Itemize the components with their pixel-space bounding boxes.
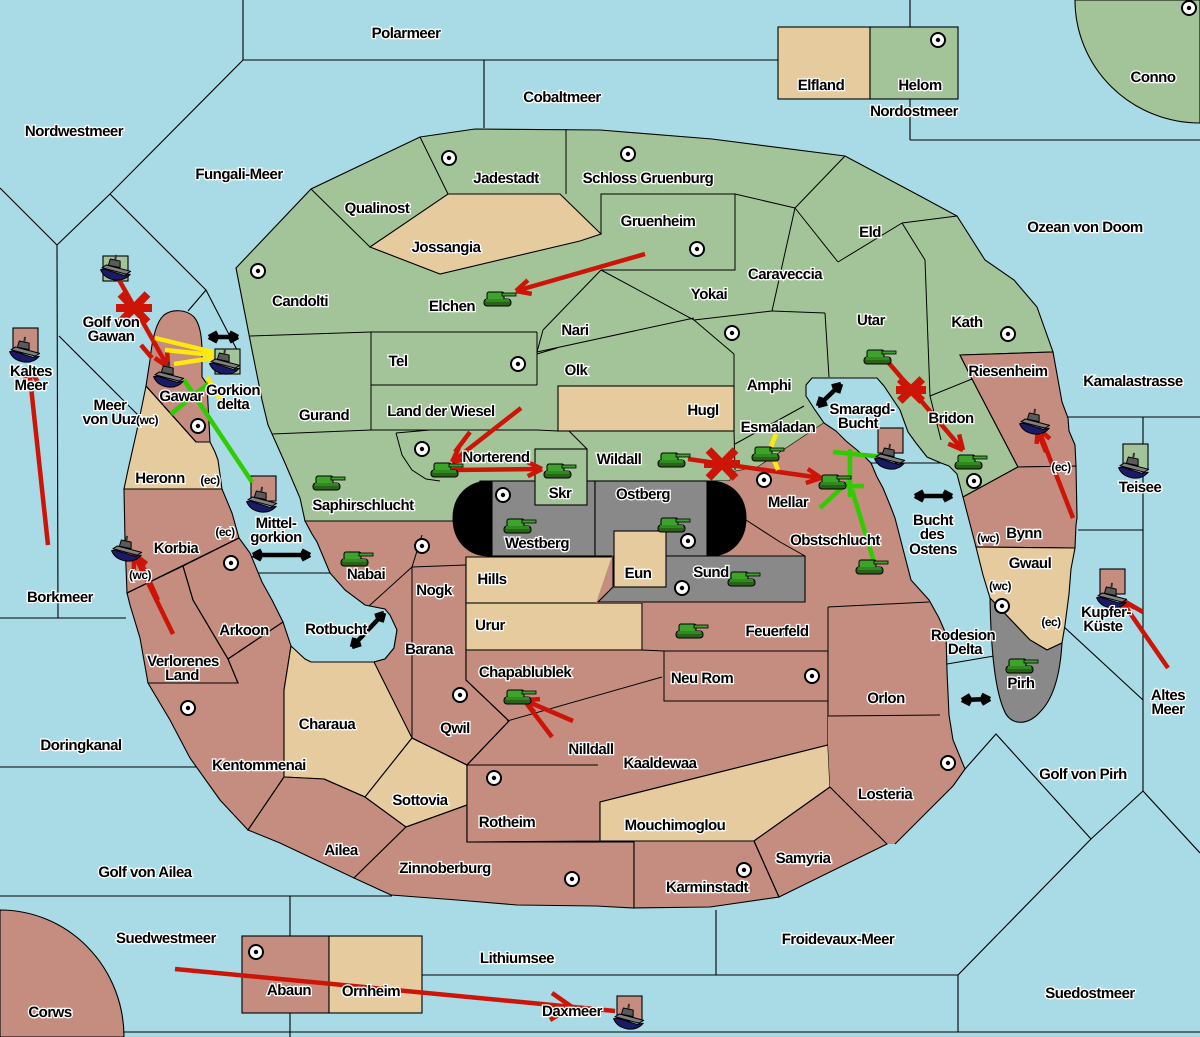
svg-text:gorkion: gorkion: [250, 529, 302, 546]
svg-text:Helom: Helom: [898, 77, 942, 94]
svg-text:Urur: Urur: [475, 617, 505, 634]
svg-text:Tel: Tel: [388, 353, 407, 370]
svg-text:Froidevaux-Meer: Froidevaux-Meer: [782, 931, 895, 948]
svg-text:Orlon: Orlon: [867, 690, 905, 707]
svg-text:Fungali-Meer: Fungali-Meer: [195, 166, 283, 183]
svg-text:Charaua: Charaua: [299, 716, 357, 733]
svg-text:Esmaladan: Esmaladan: [741, 419, 816, 436]
svg-text:Jadestadt: Jadestadt: [473, 170, 539, 187]
svg-text:Amphi: Amphi: [747, 377, 791, 394]
svg-text:Chapablublek: Chapablublek: [479, 664, 573, 681]
svg-text:Meer: Meer: [1151, 701, 1185, 718]
svg-text:Suedwestmeer: Suedwestmeer: [116, 930, 217, 947]
svg-text:Wildall: Wildall: [597, 451, 642, 468]
svg-text:Golf von Pirh: Golf von Pirh: [1039, 766, 1127, 783]
svg-text:Olk: Olk: [565, 362, 589, 379]
svg-text:Doringkanal: Doringkanal: [40, 737, 122, 754]
svg-text:Nordostmeer: Nordostmeer: [870, 103, 959, 120]
svg-text:Pirh: Pirh: [1007, 675, 1035, 692]
svg-text:Samyria: Samyria: [776, 850, 832, 867]
svg-text:Gawan: Gawan: [88, 328, 135, 345]
svg-text:Kamalastrasse: Kamalastrasse: [1083, 373, 1183, 390]
svg-text:Saphirschlucht: Saphirschlucht: [312, 497, 414, 514]
svg-text:Borkmeer: Borkmeer: [27, 589, 94, 606]
svg-text:(ec): (ec): [215, 525, 235, 539]
svg-text:Gruenheim: Gruenheim: [621, 213, 696, 230]
svg-text:Neu Rom: Neu Rom: [671, 670, 734, 687]
svg-text:Karminstadt: Karminstadt: [666, 879, 749, 896]
svg-text:Land der Wiesel: Land der Wiesel: [387, 403, 495, 420]
svg-text:(wc): (wc): [989, 579, 1012, 593]
svg-text:Qwil: Qwil: [440, 720, 470, 737]
svg-text:Ozean von Doom: Ozean von Doom: [1027, 219, 1143, 236]
svg-text:Lithiumsee: Lithiumsee: [480, 950, 554, 967]
svg-text:Nordwestmeer: Nordwestmeer: [25, 123, 124, 140]
svg-text:Candolti: Candolti: [272, 293, 328, 310]
svg-text:Zinnoberburg: Zinnoberburg: [399, 860, 491, 877]
svg-text:Küste: Küste: [1083, 618, 1122, 635]
svg-text:Abaun: Abaun: [267, 982, 312, 999]
svg-text:Ostberg: Ostberg: [616, 486, 670, 503]
svg-text:(ec): (ec): [1041, 615, 1061, 629]
svg-text:(wc): (wc): [129, 568, 152, 582]
svg-text:Utar: Utar: [857, 312, 886, 329]
svg-text:Obstschlucht: Obstschlucht: [790, 532, 880, 549]
svg-text:Kentommenai: Kentommenai: [212, 757, 306, 774]
svg-text:(wc): (wc): [136, 413, 159, 427]
svg-text:Ornheim: Ornheim: [342, 983, 400, 1000]
svg-text:Rotbucht: Rotbucht: [305, 621, 367, 638]
svg-text:Yokai: Yokai: [691, 286, 728, 303]
svg-text:Gawar: Gawar: [159, 388, 203, 405]
svg-text:Mouchimoglou: Mouchimoglou: [625, 817, 726, 834]
svg-text:Corws: Corws: [28, 1004, 72, 1021]
svg-text:Kath: Kath: [951, 314, 983, 331]
svg-text:Daxmeer: Daxmeer: [542, 1003, 603, 1020]
svg-text:Polarmeer: Polarmeer: [372, 25, 442, 42]
svg-text:Eld: Eld: [859, 224, 881, 241]
svg-text:Ostens: Ostens: [909, 541, 957, 558]
svg-text:Korbia: Korbia: [154, 540, 200, 557]
svg-text:Riesenheim: Riesenheim: [968, 363, 1047, 380]
svg-text:Arkoon: Arkoon: [219, 622, 269, 639]
svg-text:Elfland: Elfland: [798, 77, 845, 94]
svg-text:Norterend: Norterend: [462, 449, 530, 466]
svg-text:(ec): (ec): [200, 473, 220, 487]
svg-text:Sottovia: Sottovia: [392, 792, 448, 809]
svg-text:Bridon: Bridon: [928, 410, 974, 427]
svg-text:Land: Land: [165, 667, 199, 684]
svg-text:Golf von Ailea: Golf von Ailea: [98, 864, 192, 881]
svg-text:Kaaldewaa: Kaaldewaa: [623, 755, 697, 772]
svg-text:Nogk: Nogk: [416, 582, 453, 599]
svg-text:Nari: Nari: [561, 322, 589, 339]
svg-text:von Uuz: von Uuz: [83, 411, 138, 428]
svg-text:Bynn: Bynn: [1006, 525, 1042, 542]
svg-text:Losteria: Losteria: [858, 786, 914, 803]
svg-text:Delta: Delta: [948, 641, 983, 658]
svg-text:Skr: Skr: [549, 485, 572, 502]
svg-text:Teisee: Teisee: [1119, 479, 1162, 496]
svg-text:Gwaul: Gwaul: [1009, 555, 1052, 572]
svg-text:Hills: Hills: [477, 571, 506, 588]
svg-text:Qualinost: Qualinost: [345, 200, 410, 217]
svg-text:Jossangia: Jossangia: [412, 239, 482, 256]
svg-text:Heronn: Heronn: [135, 470, 185, 487]
svg-text:Nabai: Nabai: [347, 566, 386, 583]
svg-text:Elchen: Elchen: [429, 298, 476, 315]
svg-text:Conno: Conno: [1131, 69, 1176, 86]
svg-text:Westberg: Westberg: [505, 535, 569, 552]
svg-text:Meer: Meer: [14, 377, 48, 394]
svg-text:Rotheim: Rotheim: [479, 814, 536, 831]
svg-text:Mellar: Mellar: [768, 494, 809, 511]
svg-text:Bucht: Bucht: [838, 415, 879, 432]
svg-text:Gurand: Gurand: [299, 407, 350, 424]
svg-text:Nilldall: Nilldall: [568, 741, 614, 758]
svg-text:Schloss Gruenburg: Schloss Gruenburg: [583, 170, 714, 187]
svg-text:delta: delta: [217, 396, 251, 413]
svg-text:Sund: Sund: [693, 564, 729, 581]
svg-text:(ec): (ec): [1051, 460, 1071, 474]
svg-text:Ailea: Ailea: [324, 842, 359, 859]
svg-text:(wc): (wc): [977, 531, 1000, 545]
svg-text:Caraveccia: Caraveccia: [748, 266, 823, 283]
svg-text:Cobaltmeer: Cobaltmeer: [523, 89, 601, 106]
svg-text:Eun: Eun: [625, 565, 652, 582]
svg-text:Barana: Barana: [405, 641, 454, 658]
svg-text:Feuerfeld: Feuerfeld: [745, 623, 808, 640]
svg-text:Suedostmeer: Suedostmeer: [1045, 985, 1135, 1002]
svg-text:Hugl: Hugl: [687, 402, 719, 419]
